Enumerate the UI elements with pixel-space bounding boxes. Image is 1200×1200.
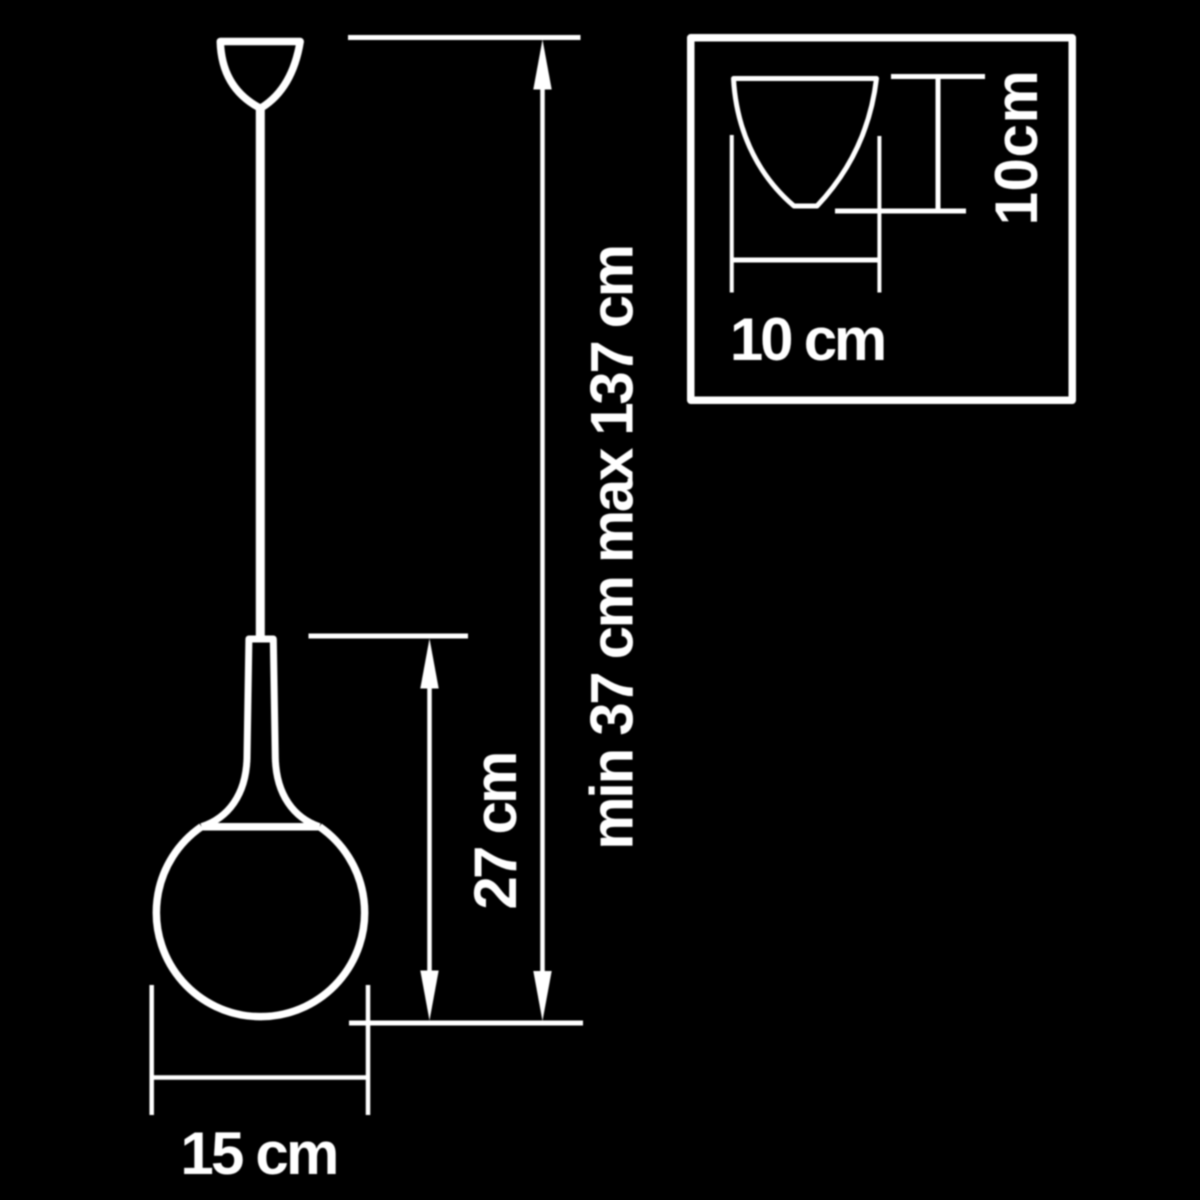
svg-text:min 37 cm max 137 cm: min 37 cm max 137 cm — [579, 246, 646, 849]
svg-text:10 cm: 10 cm — [730, 306, 884, 373]
svg-text:10cm: 10cm — [983, 70, 1050, 226]
svg-text:15 cm: 15 cm — [180, 1120, 336, 1187]
svg-text:27 cm: 27 cm — [462, 753, 529, 909]
